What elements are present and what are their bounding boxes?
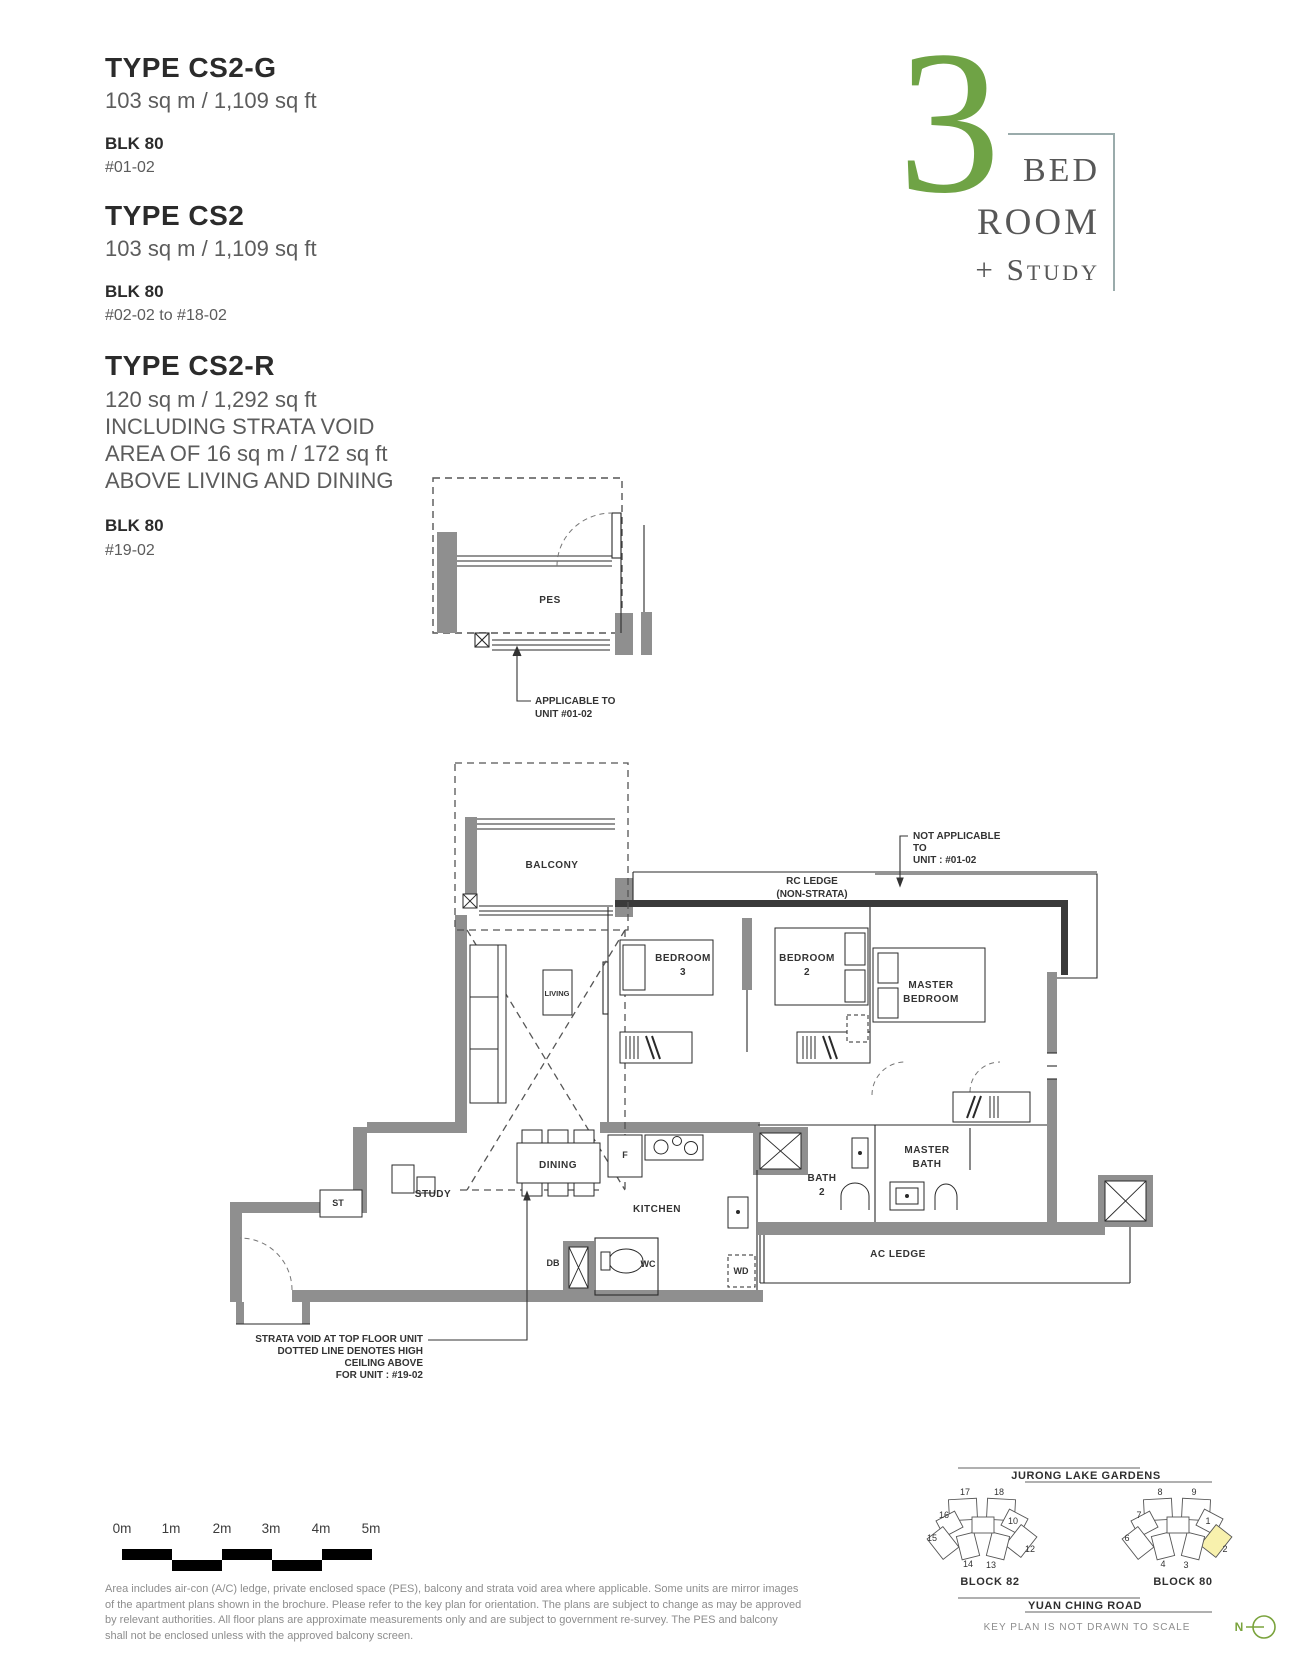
block80-unit-7: 7 [1136, 1510, 1141, 1520]
logo-right-line [1113, 133, 1115, 291]
block82-unit-10: 10 [1008, 1516, 1018, 1526]
kitchen-label: KITCHEN [633, 1204, 681, 1215]
scale-bar-segment [172, 1560, 222, 1571]
scale-bar-segment [322, 1549, 372, 1560]
block82-unit-14: 14 [963, 1559, 973, 1569]
living-label: LIVING [544, 989, 569, 998]
ac-ledge-label: AC LEDGE [870, 1249, 926, 1260]
disclaimer-line-3: by relevant authorities. All floor plans… [105, 1613, 825, 1629]
wc-label: WC [641, 1259, 656, 1269]
key-plan-block-82: 17 18 16 10 15 12 14 13 [927, 1487, 1037, 1570]
master-bath-label-1: MASTER [904, 1145, 950, 1156]
bedroom3-label-1: BEDROOM [655, 953, 711, 964]
block80-unit-8: 8 [1157, 1487, 1162, 1497]
bottom-road-label: YUAN CHING ROAD [1028, 1600, 1142, 1612]
key-plan-top-road-label: JURONG LAKE GARDENS [1011, 1470, 1161, 1482]
balcony-label: BALCONY [526, 860, 579, 871]
main-floor-plan: BALCONY LIVING DINING STUDY ST KITCHEN F… [180, 700, 1160, 1390]
disclaimer-line-4: shall not be enclosed unless with the ap… [105, 1629, 825, 1645]
unit-type-1-units: #01-02 [105, 159, 155, 177]
key-plan-note: KEY PLAN IS NOT DRAWN TO SCALE [984, 1622, 1191, 1633]
scale-label-4m: 4m [299, 1521, 343, 1536]
not-applicable-note-2: TO [913, 843, 927, 854]
compass-n-label: N [1235, 1620, 1244, 1634]
unit-type-2-title: TYPE CS2 [105, 200, 244, 232]
block-80-label: BLOCK 80 [1153, 1576, 1212, 1588]
bedroom2-label-1: BEDROOM [779, 953, 835, 964]
scale-bar-segment [272, 1560, 322, 1571]
dining-label: DINING [539, 1160, 577, 1171]
study-label: STUDY [415, 1189, 451, 1200]
bath2-label-2: 2 [819, 1187, 825, 1198]
north-compass-icon: N [1235, 1616, 1275, 1638]
unit-type-3-note-2: AREA OF 16 sq m / 172 sq ft [105, 440, 387, 467]
unit-type-2-block: BLK 80 [105, 282, 164, 302]
key-plan: JURONG LAKE GARDENS 17 18 16 10 15 12 14… [855, 1380, 1285, 1650]
block80-unit-6: 6 [1124, 1533, 1129, 1543]
unit-type-1-block: BLK 80 [105, 134, 164, 154]
unit-type-3-block: BLK 80 [105, 516, 164, 536]
bath2-label-1: BATH [807, 1173, 836, 1184]
block80-unit-2: 2 [1222, 1544, 1227, 1554]
floorplan-brochure-page: TYPE CS2-G 103 sq m / 1,109 sq ft BLK 80… [0, 0, 1290, 1653]
store-label: ST [332, 1198, 344, 1208]
disclaimer-line-2: of the apartment plans shown in the broc… [105, 1598, 825, 1614]
unit-type-3-note-1: INCLUDING STRATA VOID [105, 413, 374, 440]
scale-label-0m: 0m [100, 1521, 144, 1536]
key-plan-block-80: 8 9 7 1 6 2 4 3 [1122, 1487, 1232, 1570]
strata-void-note-1: STRATA VOID AT TOP FLOOR UNIT [255, 1334, 423, 1345]
wd-label: WD [734, 1266, 749, 1276]
block82-unit-13: 13 [986, 1560, 996, 1570]
block80-unit-9: 9 [1191, 1487, 1196, 1497]
block80-unit-3: 3 [1183, 1560, 1188, 1570]
block82-unit-18: 18 [994, 1487, 1004, 1497]
block82-unit-12: 12 [1025, 1544, 1035, 1554]
unit-type-2-area: 103 sq m / 1,109 sq ft [105, 236, 317, 262]
scale-bar-segment [122, 1549, 172, 1560]
unit-type-3-units: #19-02 [105, 542, 155, 560]
bedroom3-label-2: 3 [680, 967, 686, 978]
bedroom2-label-2: 2 [804, 967, 810, 978]
block80-unit-1: 1 [1205, 1516, 1210, 1526]
db-label: DB [547, 1258, 560, 1268]
pes-room-label: PES [539, 595, 561, 606]
master-bath-label-2: BATH [912, 1159, 941, 1170]
scale-label-1m: 1m [149, 1521, 193, 1536]
disclaimer-line-1: Area includes air-con (A/C) ledge, priva… [105, 1582, 825, 1598]
unit-type-1-area: 103 sq m / 1,109 sq ft [105, 88, 317, 114]
unit-type-3-area: 120 sq m / 1,292 sq ft [105, 386, 317, 413]
pes-door-arc [557, 513, 612, 566]
logo-word-bed: BED [900, 152, 1100, 190]
plan-thin-lines [236, 819, 1130, 1324]
strata-void-note-2: DOTTED LINE DENOTES HIGH [277, 1346, 423, 1357]
logo-word-room: ROOM [900, 201, 1100, 244]
fridge-label: F [622, 1150, 628, 1160]
master-bedroom-label-1: MASTER [908, 980, 954, 991]
pes-leader-line [513, 647, 531, 701]
scale-bar-segment [222, 1549, 272, 1560]
block82-unit-16: 16 [939, 1510, 949, 1520]
plan-room-labels: BALCONY LIVING DINING STUDY ST KITCHEN F… [332, 860, 959, 1276]
plan-gray-walls [230, 817, 1153, 1324]
rc-ledge-note-1: RC LEDGE [786, 876, 838, 887]
pes-mini-plan: PES APPLICABLE TO UNIT #01-02 [420, 470, 660, 730]
strata-void-note-3: CEILING ABOVE [344, 1358, 423, 1369]
block-82-label: BLOCK 82 [960, 1576, 1019, 1588]
master-bedroom-label-2: BEDROOM [903, 994, 959, 1005]
scale-label-5m: 5m [349, 1521, 393, 1536]
block80-unit-4: 4 [1160, 1559, 1165, 1569]
unit-type-3-note-3: ABOVE LIVING AND DINING [105, 467, 394, 494]
block82-unit-15: 15 [927, 1533, 937, 1543]
unit-type-1-title: TYPE CS2-G [105, 52, 276, 84]
strata-void-note-4: FOR UNIT : #19-02 [336, 1370, 424, 1381]
disclaimer: Area includes air-con (A/C) ledge, priva… [105, 1582, 825, 1644]
logo-word-study: + Study [900, 252, 1100, 288]
rc-ledge-note-2: (NON-STRATA) [776, 889, 847, 900]
unit-type-2-units: #02-02 to #18-02 [105, 307, 227, 325]
logo-top-line [1008, 133, 1114, 135]
scale-label-2m: 2m [200, 1521, 244, 1536]
block82-unit-17: 17 [960, 1487, 970, 1497]
not-applicable-note-3: UNIT : #01-02 [913, 855, 977, 866]
not-applicable-note-1: NOT APPLICABLE [913, 831, 1001, 842]
unit-type-3-title: TYPE CS2-R [105, 350, 275, 382]
scale-label-3m: 3m [249, 1521, 293, 1536]
